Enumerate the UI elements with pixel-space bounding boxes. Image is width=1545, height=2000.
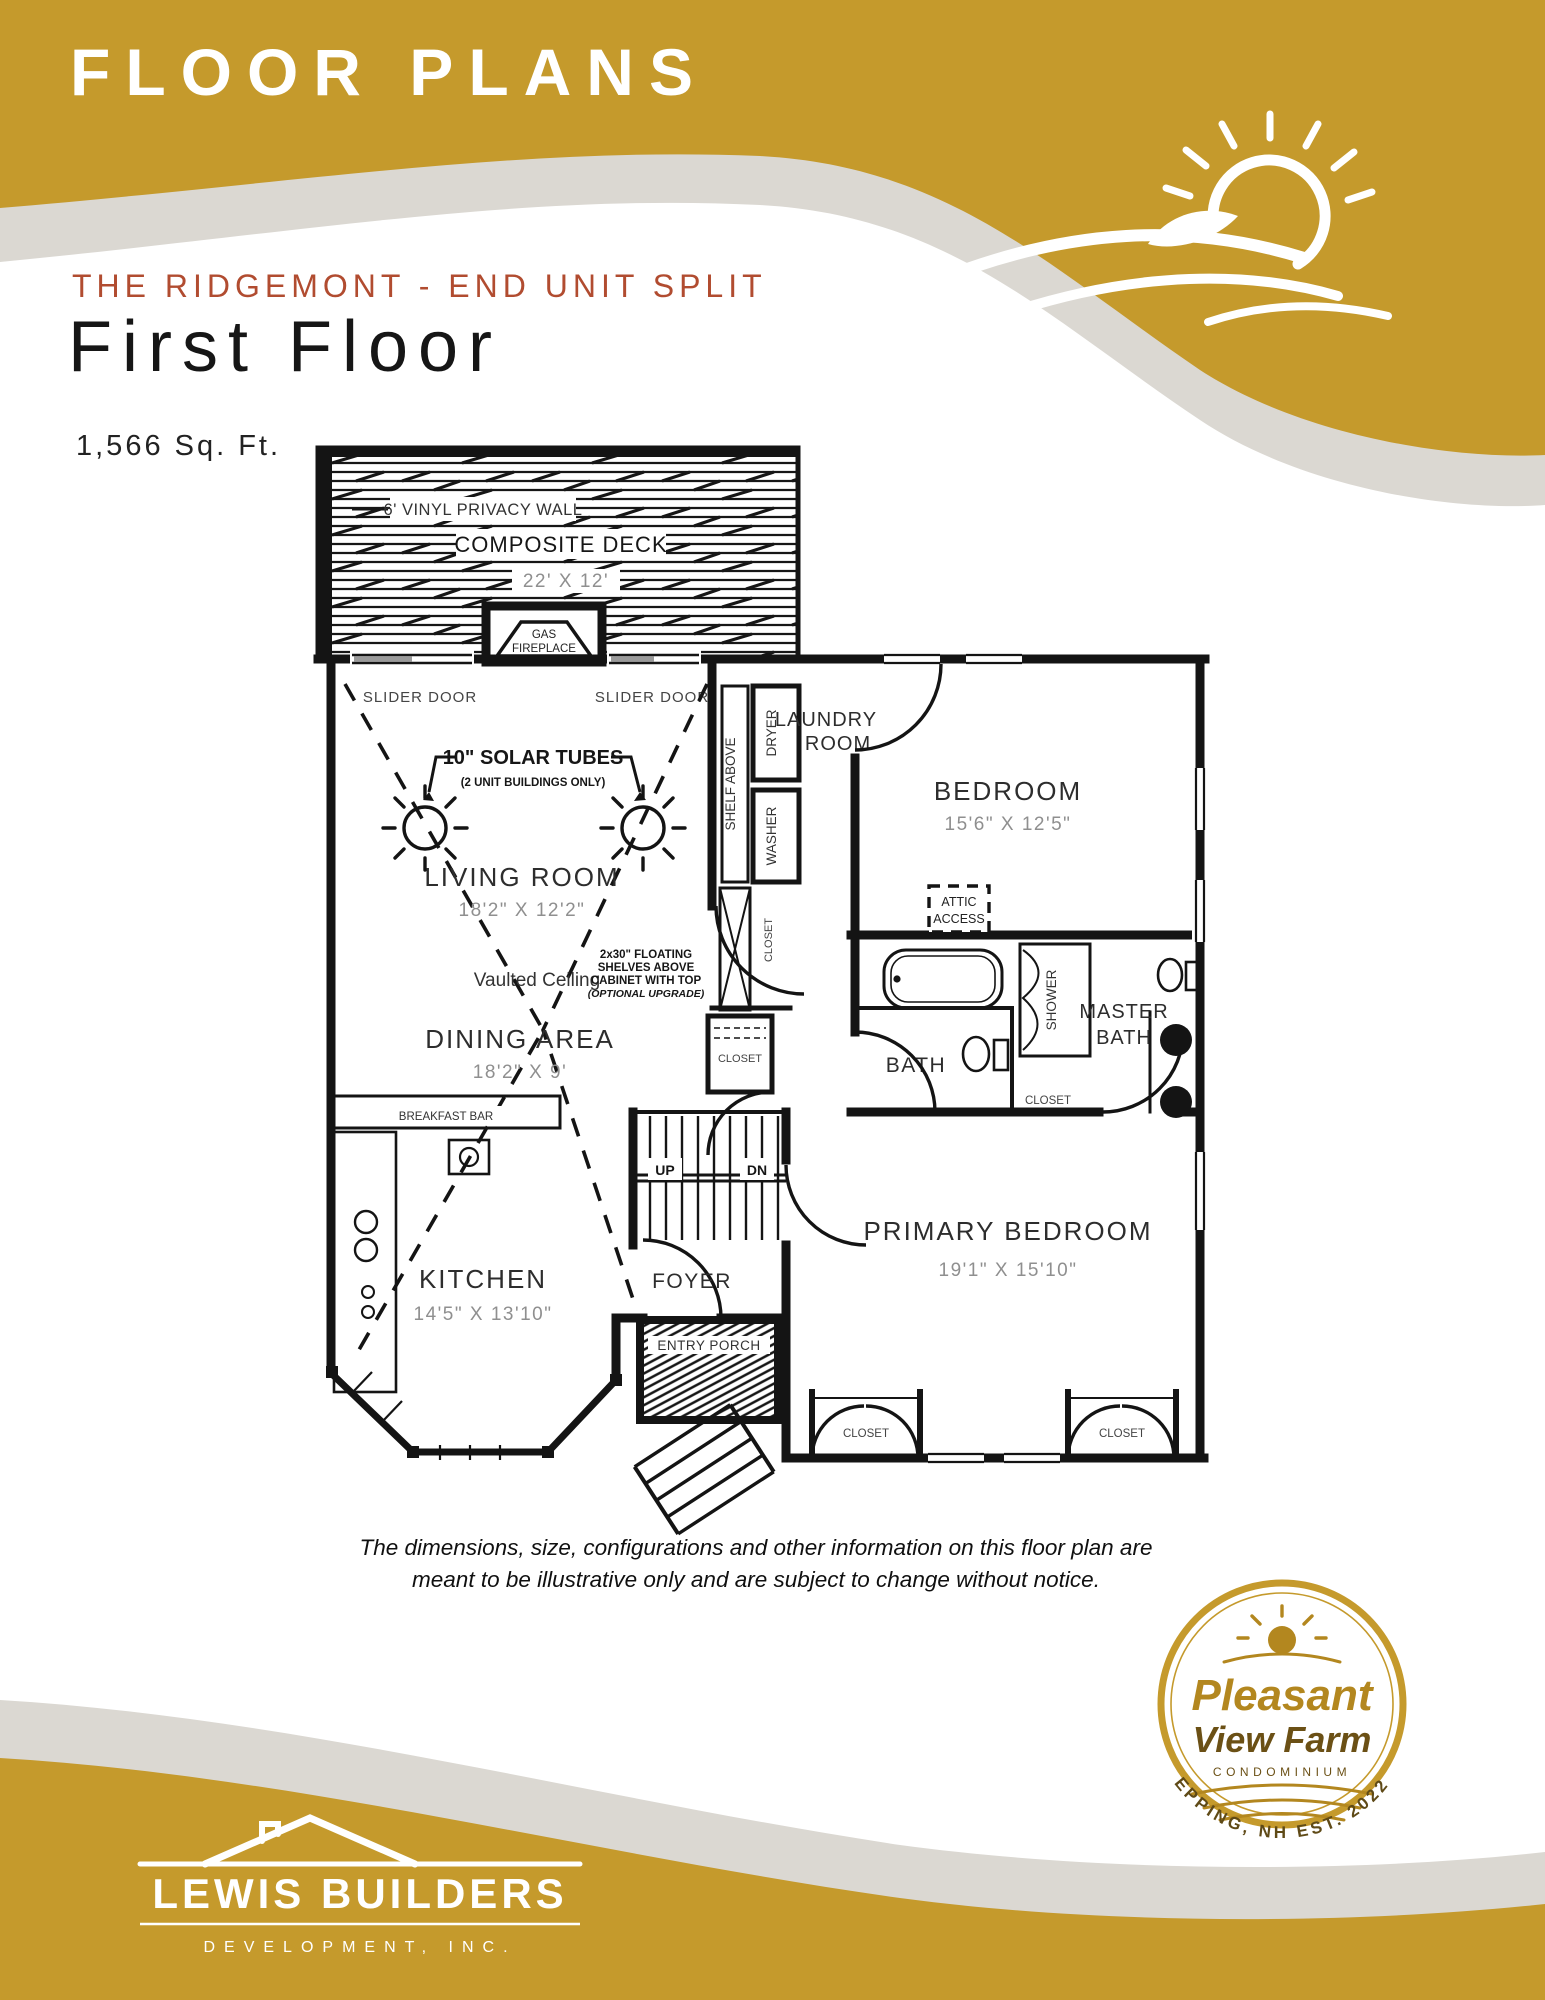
- dining-area-label: DINING AREA: [425, 1024, 615, 1054]
- hall-closet-label: CLOSET: [763, 918, 775, 962]
- center-closet-label: CLOSET: [718, 1053, 762, 1065]
- shelves-note-line: SHELVES ABOVE: [598, 962, 695, 974]
- badge-condo-label: CONDOMINIUM: [1213, 1765, 1351, 1779]
- foyer-label: FOYER: [652, 1270, 732, 1293]
- lewis-builders-sub: DEVELOPMENT, INC.: [203, 1939, 516, 1956]
- entry-steps: [635, 1405, 774, 1534]
- laundry-room-label-2: ROOM: [805, 733, 871, 755]
- floorplan-brochure-page: { "colors":{"gold":"#C59A2C","beige":"#D…: [0, 0, 1545, 2000]
- master-closet-label: CLOSET: [1025, 1095, 1071, 1107]
- attic-access-label-2: ACCESS: [933, 912, 984, 926]
- laundry-room: [720, 686, 799, 1010]
- kitchen-fixtures: [332, 1096, 560, 1392]
- master-bath-label: MASTER: [1079, 1001, 1168, 1023]
- attic-access: ATTIC ACCESS: [929, 886, 989, 932]
- solar-tubes-label: 10" SOLAR TUBES: [443, 747, 624, 769]
- badge-title-2: View Farm: [1193, 1719, 1372, 1760]
- bedroom-label: BEDROOM: [934, 776, 1082, 806]
- floating-shelves-note: 2x30" FLOATING SHELVES ABOVE CABINET WIT…: [588, 949, 705, 1000]
- gas-fireplace: GAS FIREPLACE: [486, 606, 602, 662]
- bath-label: BATH: [886, 1054, 946, 1077]
- laundry-room-label: LAUNDRY: [775, 709, 877, 731]
- breakfast-bar-label: BREAKFAST BAR: [399, 1111, 493, 1123]
- primary-bedroom-dim: 19'1" X 15'10": [939, 1260, 1078, 1281]
- kitchen-dim: 14'5" X 13'10": [414, 1304, 553, 1325]
- entry-porch-label: ENTRY PORCH: [657, 1338, 760, 1353]
- dining-area-dim: 18'2" X 9': [473, 1062, 568, 1083]
- attic-access-label: ATTIC: [941, 895, 976, 909]
- master-bath-label-2: BATH: [1096, 1027, 1152, 1049]
- privacy-wall-label: 6' VINYL PRIVACY WALL: [384, 501, 583, 519]
- stairs-up-label: UP: [655, 1162, 674, 1178]
- washer-label: WASHER: [764, 806, 779, 865]
- slider-window-left: [350, 650, 474, 668]
- slider-door-right-label: SLIDER DOOR: [595, 689, 709, 706]
- lewis-builders-name: LEWIS BUILDERS: [152, 1870, 567, 1917]
- solar-tubes-note: (2 UNIT BUILDINGS ONLY): [461, 777, 606, 789]
- vaulted-ceiling-label: Vaulted Ceiling: [474, 970, 600, 991]
- shelf-above-label: SHELF ABOVE: [723, 737, 738, 830]
- closet-bottom-right-label: CLOSET: [1099, 1428, 1145, 1440]
- living-room-dim: 18'2" X 12'2": [459, 900, 586, 921]
- primary-bedroom-label: PRIMARY BEDROOM: [863, 1216, 1152, 1246]
- slider-window-right: [607, 650, 701, 668]
- deck-name-label: COMPOSITE DECK: [454, 532, 667, 557]
- slider-door-left-label: SLIDER DOOR: [363, 689, 477, 706]
- kitchen-label: KITCHEN: [419, 1264, 547, 1294]
- closet-bottom-left-label: CLOSET: [843, 1428, 889, 1440]
- shower-label: SHOWER: [1044, 969, 1059, 1030]
- disclaimer: The dimensions, size, configurations and…: [300, 1532, 1212, 1596]
- disclaimer-line-1: The dimensions, size, configurations and…: [300, 1532, 1212, 1564]
- fireplace-label-2: FIREPLACE: [512, 643, 576, 655]
- deck-dim-label: 22' X 12': [523, 571, 609, 592]
- shelves-note-line: (OPTIONAL UPGRADE): [588, 988, 705, 1000]
- entry-porch: ENTRY PORCH: [640, 1320, 778, 1420]
- badge-title-1: Pleasant: [1192, 1671, 1375, 1720]
- solar-tubes: [383, 757, 685, 870]
- center-closet: CLOSET: [708, 1016, 772, 1092]
- disclaimer-line-2: meant to be illustrative only and are su…: [300, 1564, 1212, 1596]
- shelves-note-line: 2x30" FLOATING: [600, 949, 692, 961]
- living-room-label: LIVING ROOM: [424, 862, 619, 892]
- pleasant-view-farm-badge: Pleasant View Farm CONDOMINIUM EPPING, N…: [1126, 1554, 1446, 1874]
- fireplace-label: GAS: [532, 629, 557, 641]
- bedroom-dim: 15'6" X 12'5": [945, 814, 1072, 835]
- shelves-note-line: CABINET WITH TOP: [591, 975, 702, 987]
- lewis-builders-logo: LEWIS BUILDERS DEVELOPMENT, INC.: [110, 1790, 610, 1980]
- stairs-dn-label: DN: [747, 1162, 767, 1178]
